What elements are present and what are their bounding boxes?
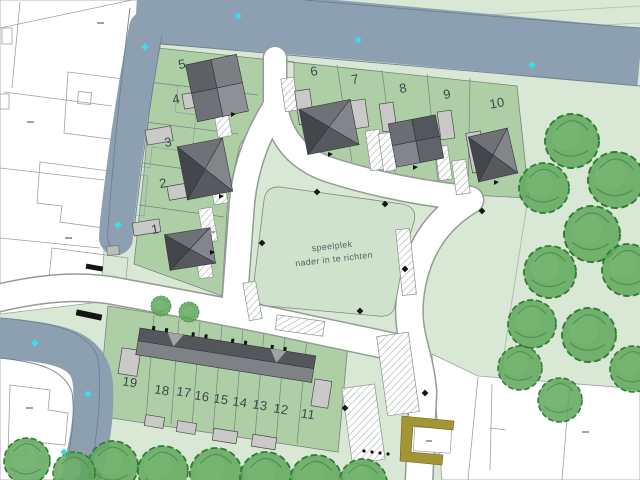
house-roof-lot-1 [164,228,215,271]
canal-dam [107,246,120,256]
tree-icon [519,163,569,213]
tree-icon [545,114,599,168]
tree-icon [498,346,542,390]
house-roof-lots-6-7 [299,99,359,154]
tree-icon [524,246,576,298]
tree-icon [562,308,616,362]
site-plan-drawing [0,0,640,480]
house-roof-lots-8-9 [388,115,444,167]
play-area [253,187,415,316]
tree-icon [538,378,582,422]
tree-icon [179,302,199,322]
site-plan: 1 2 3 4 5 6 7 8 9 10 11 12 13 14 15 16 1… [0,0,640,480]
tree-icon [508,300,556,348]
tree-icon [588,152,640,208]
tree-icon [4,438,50,480]
house-roof-lots-2-3 [177,138,232,200]
tree-icon [151,296,171,316]
